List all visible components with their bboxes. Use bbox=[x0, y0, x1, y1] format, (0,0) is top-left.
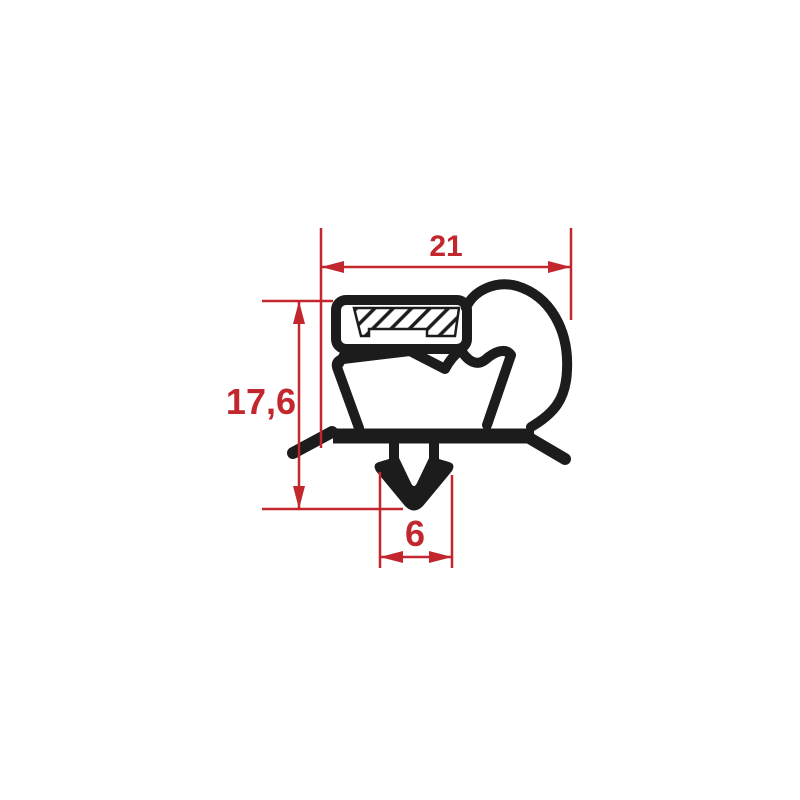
width-arrow-left-icon bbox=[321, 261, 344, 273]
foot-dimension-label: 6 bbox=[405, 513, 425, 554]
drawing-canvas: 21 17,6 6 bbox=[0, 0, 800, 800]
foot-arrow-left-icon bbox=[380, 551, 403, 563]
magnet-hatch-fill bbox=[354, 308, 459, 336]
bulb-outer-wall bbox=[466, 284, 567, 427]
height-arrow-up-icon bbox=[293, 301, 305, 324]
dart-shape bbox=[375, 438, 454, 511]
height-arrow-down-icon bbox=[293, 486, 305, 509]
width-arrow-right-icon bbox=[548, 261, 571, 273]
width-dimension-label: 21 bbox=[429, 230, 462, 263]
height-dimension-label: 17,6 bbox=[226, 381, 296, 422]
gasket-profile-drawing: 21 17,6 6 bbox=[0, 0, 800, 800]
bellows-outline bbox=[337, 350, 461, 428]
snap-in-dart bbox=[375, 438, 454, 511]
gasket-profile bbox=[293, 284, 567, 459]
foot-arrow-right-icon bbox=[429, 551, 452, 563]
bulb-inner-wall bbox=[461, 350, 511, 425]
right-lip bbox=[531, 439, 565, 459]
